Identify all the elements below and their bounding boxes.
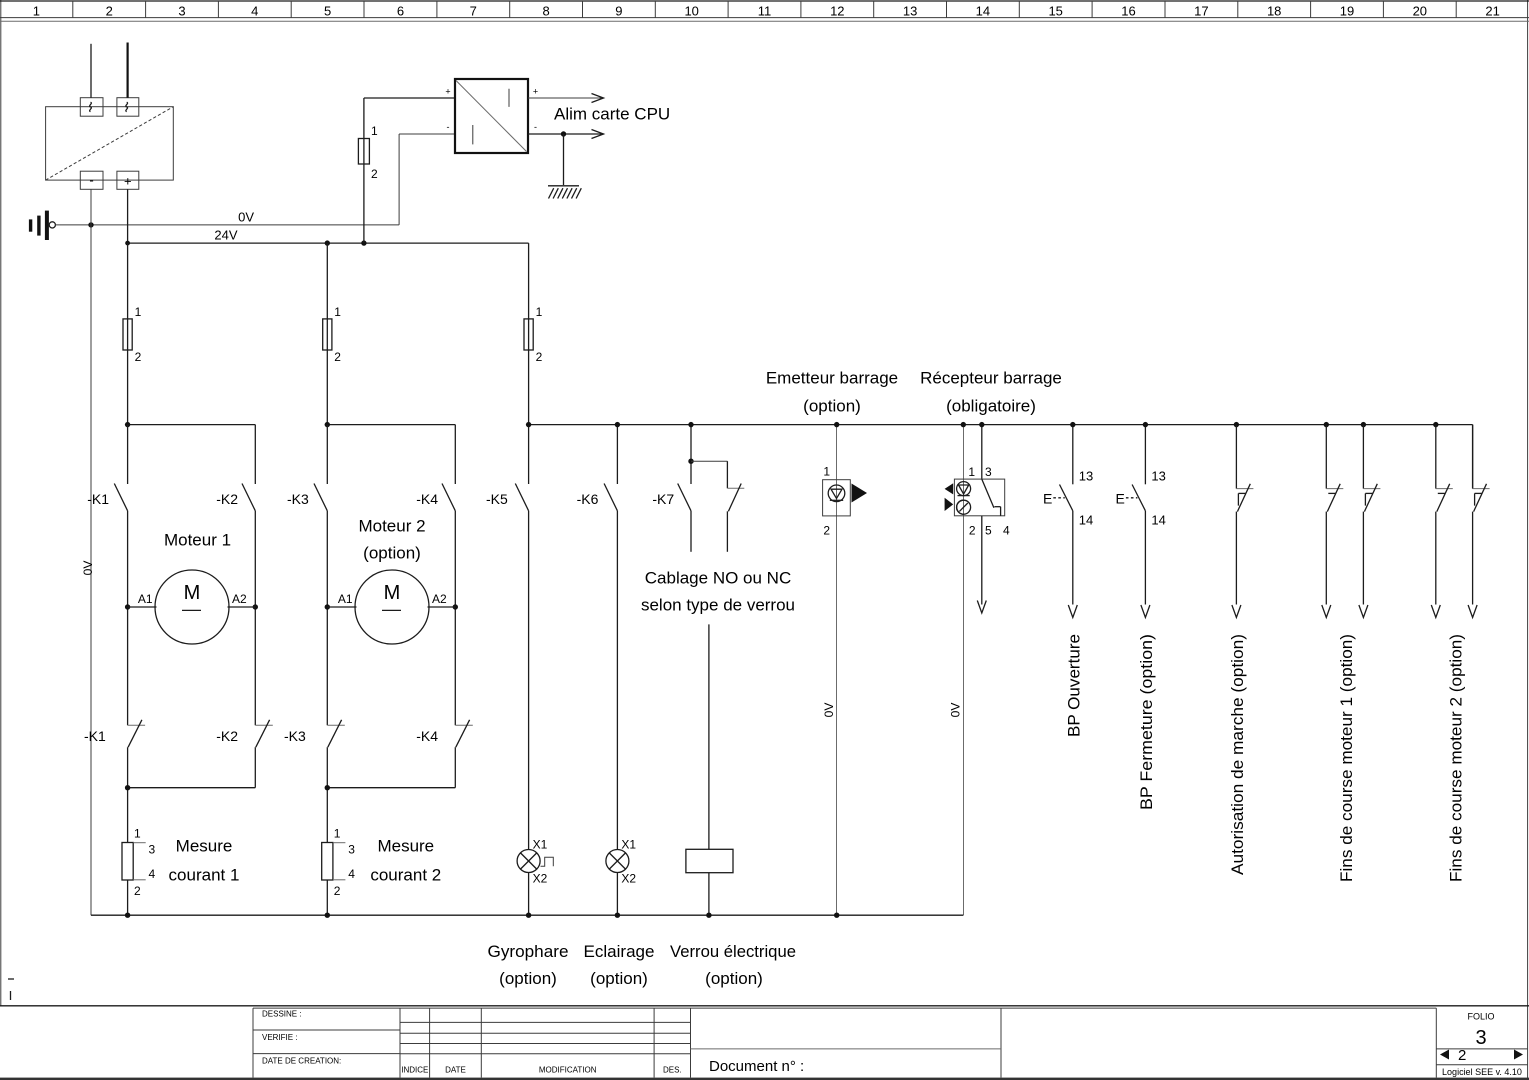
svg-text:1: 1 — [134, 827, 141, 841]
svg-text:+: + — [445, 87, 450, 97]
svg-text:16: 16 — [1121, 3, 1135, 18]
svg-text:courant 2: courant 2 — [370, 866, 441, 885]
svg-text:Autorisation de marche (option: Autorisation de marche (option) — [1228, 634, 1247, 875]
svg-text:20: 20 — [1413, 3, 1427, 18]
svg-text:Gyrophare: Gyrophare — [488, 942, 569, 961]
svg-text:BP Ouverture: BP Ouverture — [1064, 634, 1083, 737]
svg-text:E: E — [1043, 491, 1052, 507]
svg-text:0V: 0V — [238, 209, 254, 224]
svg-text:3: 3 — [1475, 1027, 1486, 1049]
svg-text:BP Fermeture (option): BP Fermeture (option) — [1137, 634, 1156, 810]
svg-text:17: 17 — [1194, 3, 1208, 18]
svg-text:13: 13 — [1079, 469, 1093, 484]
svg-text:FOLIO: FOLIO — [1467, 1012, 1494, 1022]
svg-text:Mesure: Mesure — [377, 837, 434, 856]
svg-text:13: 13 — [903, 3, 917, 18]
svg-text:14: 14 — [976, 3, 990, 18]
svg-text:Cablage NO ou NC: Cablage NO ou NC — [645, 569, 791, 588]
svg-text:-K4: -K4 — [416, 491, 438, 507]
svg-text:1: 1 — [371, 124, 378, 138]
svg-text:Moteur 1: Moteur 1 — [164, 531, 231, 550]
svg-text:-K3: -K3 — [287, 491, 309, 507]
svg-text:21: 21 — [1485, 3, 1499, 18]
svg-text:(option): (option) — [705, 969, 763, 988]
svg-text:A1: A1 — [338, 592, 353, 606]
svg-text:5: 5 — [985, 524, 992, 538]
svg-text:-K2: -K2 — [216, 491, 238, 507]
svg-text:3: 3 — [348, 843, 355, 857]
svg-text:1: 1 — [536, 305, 543, 319]
svg-text:1: 1 — [334, 305, 341, 319]
svg-text:-: - — [89, 173, 93, 188]
svg-text:-: - — [534, 122, 537, 132]
svg-text:-K4: -K4 — [416, 728, 438, 744]
svg-text:DATE: DATE — [445, 1066, 466, 1075]
svg-text:1: 1 — [33, 3, 40, 18]
svg-text:10: 10 — [684, 3, 698, 18]
svg-text:1: 1 — [968, 465, 975, 479]
svg-text:DATE DE CREATION:: DATE DE CREATION: — [262, 1057, 341, 1066]
svg-text:(option): (option) — [590, 969, 648, 988]
svg-text:-K1: -K1 — [87, 491, 109, 507]
svg-text:24V: 24V — [214, 228, 237, 243]
svg-text:+: + — [533, 87, 538, 97]
svg-text:2: 2 — [536, 350, 543, 364]
svg-text:3: 3 — [149, 843, 156, 857]
svg-text:E: E — [1116, 491, 1125, 507]
svg-text:(option): (option) — [363, 544, 421, 563]
svg-text:A2: A2 — [232, 592, 247, 606]
svg-text:-: - — [447, 122, 450, 132]
svg-text:courant 1: courant 1 — [169, 866, 240, 885]
svg-text:Eclairage: Eclairage — [584, 942, 655, 961]
svg-text:X2: X2 — [533, 872, 548, 886]
svg-text:4: 4 — [1003, 524, 1010, 538]
svg-text:Moteur 2: Moteur 2 — [358, 517, 425, 536]
svg-text:2: 2 — [969, 524, 976, 538]
svg-text:(option): (option) — [499, 969, 557, 988]
svg-text:3: 3 — [178, 3, 185, 18]
svg-text:M: M — [184, 582, 201, 604]
svg-text:0V: 0V — [81, 561, 95, 576]
svg-text:18: 18 — [1267, 3, 1281, 18]
svg-text:1: 1 — [823, 465, 830, 479]
svg-text:15: 15 — [1048, 3, 1062, 18]
svg-text:selon type de verrou: selon type de verrou — [641, 596, 795, 615]
svg-text:0V: 0V — [949, 703, 963, 718]
svg-text:X1: X1 — [533, 838, 548, 852]
svg-text:-K1: -K1 — [84, 728, 106, 744]
svg-text:19: 19 — [1340, 3, 1354, 18]
svg-text:Alim carte CPU: Alim carte CPU — [554, 105, 670, 124]
svg-text:2: 2 — [134, 884, 141, 898]
svg-text:13: 13 — [1151, 469, 1165, 484]
svg-text:Document n° :: Document n° : — [709, 1058, 804, 1075]
svg-text:-K5: -K5 — [486, 491, 508, 507]
svg-text:Verrou électrique: Verrou électrique — [670, 942, 796, 961]
svg-text:(option): (option) — [803, 397, 861, 416]
svg-text:11: 11 — [758, 3, 772, 18]
svg-text:-K2: -K2 — [216, 728, 238, 744]
svg-text:12: 12 — [830, 3, 844, 18]
svg-text:Fins de course moteur 2 (optio: Fins de course moteur 2 (option) — [1447, 634, 1466, 882]
svg-text:X1: X1 — [621, 838, 636, 852]
svg-text:2: 2 — [371, 167, 378, 181]
svg-text:Mesure: Mesure — [176, 837, 233, 856]
svg-text:Emetteur barrage: Emetteur barrage — [766, 369, 898, 388]
svg-text:Logiciel SEE v. 4.10: Logiciel SEE v. 4.10 — [1442, 1067, 1522, 1077]
svg-text:4: 4 — [251, 3, 258, 18]
svg-text:+: + — [124, 174, 132, 189]
svg-text:X2: X2 — [621, 872, 636, 886]
svg-text:A2: A2 — [432, 592, 447, 606]
svg-text:4: 4 — [348, 867, 355, 881]
svg-text:8: 8 — [542, 3, 549, 18]
svg-text:14: 14 — [1079, 513, 1093, 528]
svg-text:7: 7 — [470, 3, 477, 18]
svg-text:INDICE: INDICE — [401, 1066, 428, 1075]
svg-text:6: 6 — [397, 3, 404, 18]
svg-text:MODIFICATION: MODIFICATION — [539, 1066, 597, 1075]
svg-text:(obligatoire): (obligatoire) — [946, 397, 1036, 416]
svg-text:14: 14 — [1151, 513, 1165, 528]
svg-text:3: 3 — [985, 465, 992, 479]
svg-text:0V: 0V — [822, 703, 836, 718]
svg-text:2: 2 — [334, 884, 341, 898]
svg-text:-K3: -K3 — [284, 728, 306, 744]
svg-text:9: 9 — [615, 3, 622, 18]
svg-text:1: 1 — [334, 827, 341, 841]
svg-text:2: 2 — [823, 524, 830, 538]
svg-text:DES.: DES. — [663, 1066, 682, 1075]
svg-text:Récepteur barrage: Récepteur barrage — [920, 369, 1062, 388]
svg-text:Fins de course moteur 1 (optio: Fins de course moteur 1 (option) — [1337, 634, 1356, 882]
svg-text:4: 4 — [149, 867, 156, 881]
svg-text:1: 1 — [135, 305, 142, 319]
svg-text:2: 2 — [135, 350, 142, 364]
svg-text:A1: A1 — [138, 592, 153, 606]
svg-text:-K6: -K6 — [577, 491, 599, 507]
svg-text:DESSINE :: DESSINE : — [262, 1010, 302, 1019]
svg-text:M: M — [384, 582, 401, 604]
svg-text:VERIFIE :: VERIFIE : — [262, 1033, 298, 1042]
svg-text:2: 2 — [1458, 1047, 1466, 1064]
svg-text:5: 5 — [324, 3, 331, 18]
svg-text:-K7: -K7 — [652, 491, 674, 507]
svg-text:2: 2 — [106, 3, 113, 18]
svg-text:2: 2 — [334, 350, 341, 364]
